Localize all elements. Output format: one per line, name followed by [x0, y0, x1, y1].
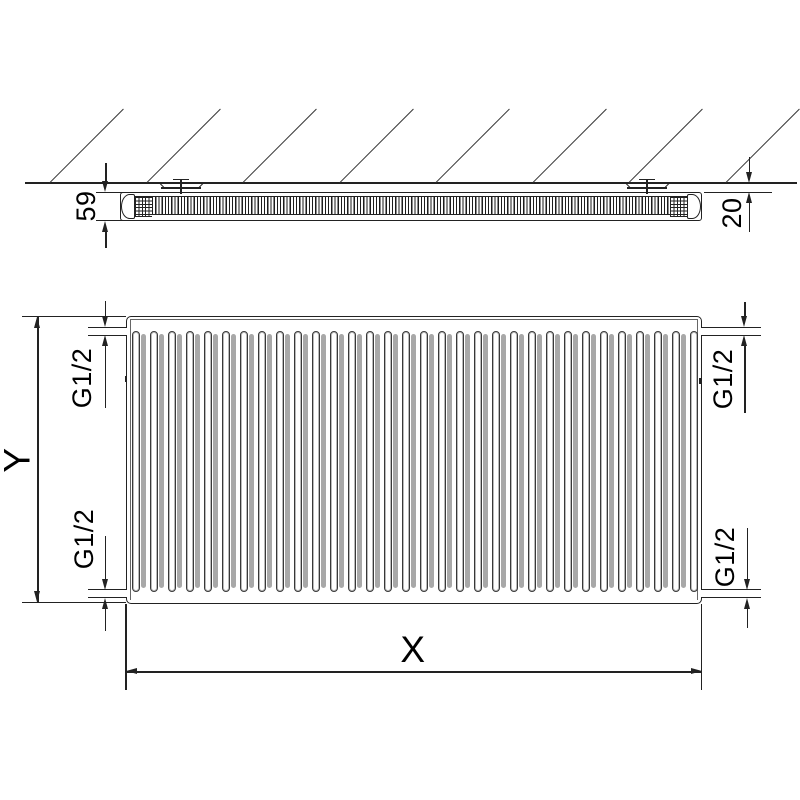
- arrowhead-right: [691, 668, 702, 674]
- dim-line: [747, 528, 748, 579]
- fin-shade: [609, 334, 614, 588]
- fin: [312, 331, 320, 592]
- fin: [348, 331, 356, 592]
- arrowhead-down: [102, 316, 108, 327]
- fin: [150, 331, 158, 592]
- fin: [528, 331, 536, 592]
- fin-shade: [483, 334, 488, 588]
- fin: [240, 331, 248, 592]
- fin-shade: [447, 334, 452, 588]
- fin: [402, 331, 410, 592]
- fin: [618, 331, 626, 592]
- connection-stub-bottom-left: [88, 589, 127, 598]
- fin: [438, 331, 446, 592]
- arrowhead-up: [102, 598, 108, 609]
- fin-shade: [375, 334, 380, 588]
- fin: [564, 331, 572, 592]
- extension-line: [701, 604, 702, 690]
- arrowhead-up: [34, 317, 40, 328]
- connection-label-top-left: G1/2: [67, 328, 97, 428]
- dim-line: [105, 536, 106, 579]
- dim-line: [105, 609, 106, 631]
- fin: [276, 331, 284, 592]
- fin: [492, 331, 500, 592]
- dim-line: [105, 346, 106, 408]
- fin: [258, 331, 266, 592]
- height-dimension-label: Y: [3, 408, 33, 513]
- fin-shade: [195, 334, 200, 588]
- fin-shade: [573, 334, 578, 588]
- fin-shade: [555, 334, 560, 588]
- fin-shade: [339, 334, 344, 588]
- fin: [168, 331, 176, 592]
- fin-shade: [537, 334, 542, 588]
- fin-shade: [519, 334, 524, 588]
- fin-shade: [231, 334, 236, 588]
- fin: [456, 331, 464, 592]
- fin: [204, 331, 212, 592]
- extension-line: [125, 604, 126, 690]
- arrowhead-left: [126, 668, 137, 674]
- fin-shade: [177, 334, 182, 588]
- fin: [366, 331, 374, 592]
- fin-shade: [321, 334, 326, 588]
- fin-shade: [465, 334, 470, 588]
- fin: [672, 331, 680, 592]
- radiator-technical-drawing: 59 20 G1/2: [0, 0, 800, 800]
- fin-area: [132, 331, 698, 592]
- dim-line: [747, 609, 748, 628]
- fin: [690, 331, 698, 592]
- weld-mark-left: [125, 376, 128, 382]
- fin: [546, 331, 554, 592]
- arrowhead-down: [741, 316, 747, 327]
- dim-line: [126, 671, 702, 672]
- fin-shade: [357, 334, 362, 588]
- front-view: G1/2 G1/2 G1/2 G1/2: [0, 0, 800, 530]
- arrowhead-down: [102, 579, 108, 590]
- fin: [186, 331, 194, 592]
- fin: [294, 331, 302, 592]
- fin: [132, 331, 140, 592]
- fin-shade: [393, 334, 398, 588]
- fin: [330, 331, 338, 592]
- fin-shade: [213, 334, 218, 588]
- fin-shade: [645, 334, 650, 588]
- fin: [600, 331, 608, 592]
- fin: [654, 331, 662, 592]
- arrowhead-down: [34, 591, 40, 602]
- fin: [384, 331, 392, 592]
- fin-shade: [627, 334, 632, 588]
- arrowhead-up: [744, 598, 750, 609]
- fin-shade: [249, 334, 254, 588]
- weld-mark-right: [699, 378, 702, 384]
- fin-shade: [285, 334, 290, 588]
- fin-shade: [663, 334, 668, 588]
- fin-shade: [681, 334, 686, 588]
- arrowhead-up: [741, 335, 747, 346]
- fin-shade: [429, 334, 434, 588]
- connection-label-top-right: G1/2: [708, 329, 738, 429]
- dim-line: [744, 302, 745, 316]
- connection-label-bottom-right: G1/2: [710, 507, 740, 607]
- fin-shade: [501, 334, 506, 588]
- fin-shade: [411, 334, 416, 588]
- fin-shade: [141, 334, 146, 588]
- length-dimension-label: X: [363, 634, 463, 666]
- fin: [636, 331, 644, 592]
- fin-shade: [591, 334, 596, 588]
- dim-line: [744, 346, 745, 413]
- fin: [510, 331, 518, 592]
- arrowhead-down: [744, 579, 750, 590]
- arrowhead-up: [102, 335, 108, 346]
- dim-line: [105, 301, 106, 316]
- fin-shade: [267, 334, 272, 588]
- fin-shade: [159, 334, 164, 588]
- fin: [222, 331, 230, 592]
- fin: [582, 331, 590, 592]
- fin: [474, 331, 482, 592]
- connection-label-bottom-left: G1/2: [69, 489, 99, 589]
- fin-shade: [303, 334, 308, 588]
- fin: [420, 331, 428, 592]
